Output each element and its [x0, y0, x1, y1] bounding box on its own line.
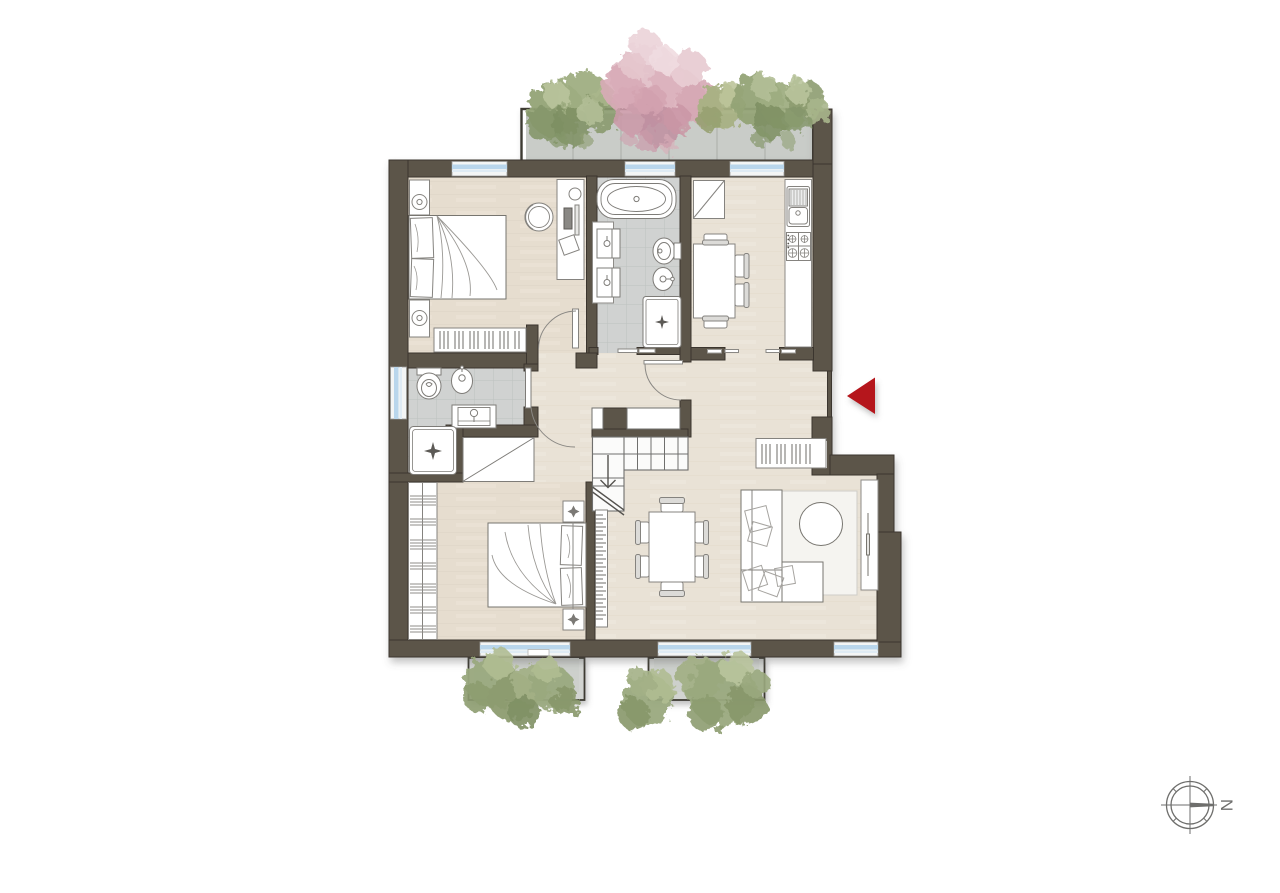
- svg-text:N: N: [1217, 799, 1236, 811]
